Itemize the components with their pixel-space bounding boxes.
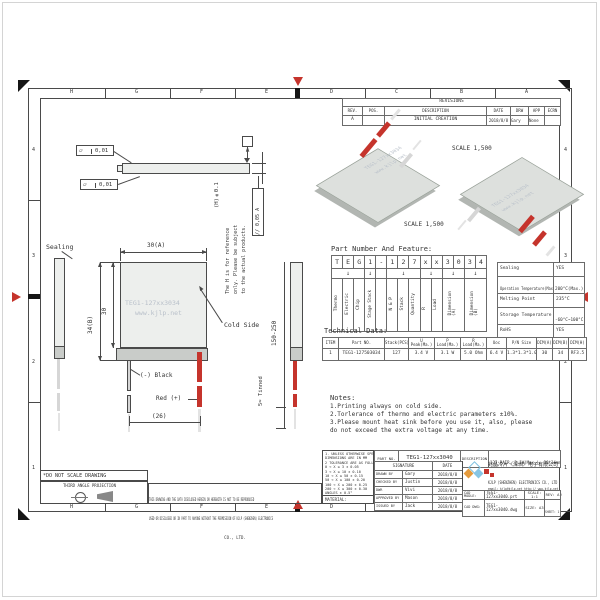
- zone-number: 1: [32, 466, 35, 471]
- right-view-red-wire: [293, 394, 297, 407]
- pn-char: 1: [365, 256, 376, 269]
- face-watermark-2: www.kjlp.net: [135, 310, 182, 317]
- feature-row: Sealing YES: [498, 263, 585, 277]
- zone-tick: [495, 88, 496, 98]
- feature-value: YES: [554, 263, 585, 277]
- pn-char: 0: [453, 256, 464, 269]
- pn-empty: [376, 279, 387, 332]
- pn-label: Electric: [346, 293, 351, 315]
- tech-header-row: ITEM Part NO. Stack(PCS) U Peak(Ma.) P L…: [323, 338, 587, 349]
- zone-tick: [235, 88, 236, 98]
- leader-line: [188, 399, 197, 400]
- parallelism-value: // 0,05 A: [256, 191, 261, 235]
- projection-cone-icon: [97, 491, 113, 502]
- pn-char: 1: [387, 256, 398, 269]
- note-line: 3.Please mount heat sink before you use …: [330, 420, 532, 426]
- rev-value: REV: A: [545, 491, 561, 500]
- tech-value: 1.3*1.3*1.0: [507, 349, 537, 361]
- flatness-icon: ▱: [79, 148, 83, 154]
- sig-role: DRAWN BY: [375, 471, 403, 479]
- pn-char: x: [431, 256, 442, 269]
- down-arrow-icon: ↓: [387, 269, 420, 279]
- sig-name: Mason: [403, 495, 433, 503]
- signature-header: SIGNATURE: [375, 462, 433, 471]
- flatness-value-1: 0,01: [91, 149, 108, 155]
- date-value: 2018/8/8: [487, 116, 511, 126]
- third-angle-label: THIRD ANGLE PROJECTION: [63, 484, 116, 488]
- signature-table: SIGNATURE DATE DRAWN BY Gary 2018/8/8 CH…: [374, 461, 463, 511]
- feature-row: Storage Temperature -60°C~100°C: [498, 308, 585, 325]
- red-wire-label: Red (+): [156, 396, 181, 402]
- pn-label: Load: [434, 299, 439, 310]
- tech-header: DIM(A): [537, 338, 553, 349]
- ext-line: [101, 360, 116, 361]
- dim-line-h: [262, 152, 263, 184]
- scale-value: SCALE: 1:1: [525, 491, 545, 500]
- note-line: 1.Printing always on cold side.: [330, 404, 442, 410]
- tech-value-row: 1 TEG1-127503034 127 3.4 V 3.1 W 5.0 Ohm…: [323, 349, 587, 361]
- tech-value: 1: [323, 349, 339, 361]
- feature-label: Storage Temperature: [498, 308, 554, 325]
- sig-name: Vivi: [403, 487, 433, 495]
- drw-value: Gary: [511, 116, 529, 126]
- material-label: MATERIAL:: [325, 498, 347, 502]
- pn-label: R: [423, 307, 428, 310]
- iso-view-left: TEG1-127xx3034 www.kjlp.net: [318, 140, 448, 230]
- app-value: None: [529, 116, 545, 126]
- cad-dwg-label: CAD DWG:: [463, 500, 485, 517]
- ext-line: [200, 416, 201, 426]
- down-arrow-icon: ↓: [442, 269, 464, 279]
- black-wire: [127, 360, 131, 391]
- signature-row: ISSUED BY Jack 2018/8/8: [375, 503, 463, 511]
- projection-circle-icon: [75, 492, 86, 503]
- down-arrow-icon: ↓: [365, 269, 376, 279]
- ext-line: [129, 416, 130, 426]
- part-number-title: Part Number And Feature:: [331, 246, 432, 253]
- sig-role: ISSUED BY: [375, 503, 403, 511]
- red-wire: [197, 352, 202, 382]
- tech-header: R Load(Ma.): [461, 338, 487, 349]
- dim-line-wire-length: [284, 262, 285, 429]
- sig-date: 2018/8/8: [433, 503, 463, 511]
- tech-value: 127: [385, 349, 409, 361]
- revisions-table: REVISIONS REV. POS. DESCRIPTION DATE DRW…: [342, 98, 561, 126]
- divider: [322, 495, 374, 496]
- features-table: Sealing YES Operation Temperature(Max.) …: [497, 262, 585, 339]
- right-view-wire-tip: [294, 409, 296, 429]
- note-line: do not exceed the extra voltage at any t…: [330, 428, 489, 434]
- zone-letter: B: [460, 90, 463, 95]
- pn-label: Thermo: [335, 295, 340, 311]
- face-watermark-1: TEG1-127xx3034: [125, 300, 180, 307]
- iso-view-right: TEG1-127xx3034 www.kjlp.net: [464, 150, 594, 240]
- side-view-right: [290, 262, 303, 348]
- zone-letter: H: [70, 90, 73, 95]
- cad-info-table: CAD MODLE: TEG1-127xx3040.prt SCALE: 1:1…: [462, 490, 561, 517]
- datum-flag: A: [242, 136, 253, 147]
- dim-height-text: 34(B): [88, 290, 94, 334]
- right-view-red-wire: [293, 361, 297, 390]
- dim-arrow: [111, 343, 115, 348]
- ext-line: [252, 173, 266, 174]
- drawing-sheet: H G F E D C B A H G F E D C B A 4 3 2 1 …: [0, 0, 600, 600]
- reference-note-line-1: The H is for reference: [226, 162, 231, 294]
- pn-char: 3: [442, 256, 453, 269]
- disclosure-line: USED OR DISCLOSED OR IN PART TO ANYONE W…: [149, 516, 273, 521]
- dim-width-text: 30(A): [147, 243, 165, 249]
- dim-arrow: [202, 250, 207, 254]
- app-col: APP: [529, 107, 545, 116]
- side-view-left: [54, 258, 65, 347]
- tech-value: 5.0 Ohm: [461, 349, 487, 361]
- center-mark-top: [295, 88, 300, 98]
- pn-char: G: [354, 256, 365, 269]
- zone-letter: D: [330, 505, 333, 510]
- tech-header: Uoc: [487, 338, 507, 349]
- zone-letter: D: [330, 90, 333, 95]
- tech-value: 30: [537, 349, 553, 361]
- pn-label: N & P: [390, 297, 395, 311]
- zone-tick: [105, 504, 106, 512]
- feature-row: Melting Point 235°C: [498, 294, 585, 308]
- flatness-value-2: 0,01: [95, 183, 112, 189]
- leader-line: [258, 176, 259, 188]
- down-arrow-icon: ↓: [332, 269, 365, 279]
- sig-date: 2018/8/8: [433, 471, 463, 479]
- revision-row: A INITIAL CREATION 2018/8/8 Gary None: [343, 116, 561, 126]
- sig-name: Justin: [403, 479, 433, 487]
- zone-letter: G: [135, 90, 138, 95]
- zone-letter: H: [70, 505, 73, 510]
- left-view-wire: [57, 393, 60, 411]
- pn-arrow-row: ↓ ↓ ↓ ↓ ↓ ↓: [332, 269, 487, 279]
- pn-label: (B): [475, 308, 480, 316]
- date-col: DATE: [487, 107, 511, 116]
- zone-letter: A: [525, 90, 528, 95]
- tech-value: TEG1-127503034: [339, 349, 385, 361]
- sig-role: APPROVED BY: [375, 495, 403, 503]
- note-line: 2.Torlerance of thermo and electric para…: [330, 412, 518, 418]
- wire-length-text: 150-250: [272, 300, 278, 346]
- scale-label-1: SCALE 1,500: [452, 146, 492, 152]
- flatness-frame-1: ▱ 0,01: [76, 145, 114, 156]
- zone-tick: [28, 200, 40, 201]
- dim-arrow: [98, 262, 102, 267]
- tech-header: DIM(B): [553, 338, 569, 349]
- size-value: SIZE: A3: [525, 500, 545, 517]
- part-number-table: T E G 1 - 1 2 7 x x 3 0 3 4 ↓ ↓ ↓ ↓ ↓ ↓ …: [331, 255, 487, 332]
- rev-value: A: [343, 116, 363, 126]
- scale-label-2: SCALE 1,500: [404, 222, 444, 228]
- zone-number: 3: [32, 254, 35, 259]
- do-not-scale-cell: *DO NOT SCALE DRAWING: [40, 470, 148, 481]
- dim-h-text: (H)±0.1: [215, 150, 221, 208]
- dim-arrow: [120, 250, 125, 254]
- feature-value: 200°C(Max.): [555, 288, 583, 293]
- sig-date: 2018/8/8: [433, 487, 463, 495]
- iso-left-face: TEG1-127xx3034 www.kjlp.net: [316, 148, 440, 223]
- notes-title: Notes:: [330, 395, 355, 402]
- register-arrow-left: [12, 292, 21, 302]
- tinned-label: 5≈ Tinned: [259, 352, 265, 406]
- company-name-cn: 兆晶冷片（深圳）电子有限公司: [488, 463, 558, 468]
- disclosure-block: THIS DRAWING AND THE DATA DISCLOSED HERE…: [148, 483, 322, 504]
- feature-label: Melting Point: [498, 294, 554, 308]
- technical-data-title: Technical Data:: [324, 328, 387, 335]
- zone-tick: [105, 88, 106, 98]
- down-arrow-icon: ↓: [420, 269, 442, 279]
- signature-row: DWR Vivi 2018/8/8: [375, 487, 463, 495]
- dim-line-wires: [129, 422, 201, 423]
- ecrn-value: [545, 116, 561, 126]
- sig-date: 2018/8/8: [433, 479, 463, 487]
- zone-tick: [28, 402, 40, 403]
- sig-role: CHECKED BY: [375, 479, 403, 487]
- zone-tick: [430, 88, 431, 98]
- pn-char: 7: [409, 256, 420, 269]
- down-arrow-icon: ↓: [464, 269, 486, 279]
- pn-char: T: [332, 256, 343, 269]
- flatness-frame-2: ▱ 0,01: [80, 179, 118, 190]
- dim-wires-text: (26): [152, 414, 166, 420]
- pn-label-row: Thermo Electric Chip Stage Stack N & P S…: [332, 279, 487, 332]
- signature-row: CHECKED BY Justin 2018/8/8: [375, 479, 463, 487]
- zone-tick: [170, 88, 171, 98]
- tech-value: 34: [553, 349, 569, 361]
- zone-letter: G: [135, 505, 138, 510]
- tech-header: P/N Size: [507, 338, 537, 349]
- description-value: INITIAL CREATION: [385, 116, 487, 126]
- pn-label: (A): [453, 308, 458, 316]
- sheet-value: SHEET: 1 OF 1: [545, 511, 561, 515]
- feature-row: Operation Temperature(Max.) 200°C(Max.): [498, 277, 585, 294]
- black-wire: [127, 395, 131, 413]
- pn-char: 3: [464, 256, 475, 269]
- zone-number: 2: [32, 360, 35, 365]
- tech-value: 3.1 W: [435, 349, 461, 361]
- ext-line: [252, 163, 266, 164]
- pn-label: Stack: [401, 297, 406, 311]
- tech-value: 3.4 V: [409, 349, 435, 361]
- pn-code-row: T E G 1 - 1 2 7 x x 3 0 3 4: [332, 256, 487, 269]
- side-view-left-edge: [54, 346, 65, 359]
- pn-char: -: [376, 256, 387, 269]
- feature-label: Operation Temperature(Max.): [500, 288, 554, 293]
- dim-arrow: [111, 262, 115, 267]
- zone-letter: E: [265, 90, 268, 95]
- pn-char: E: [343, 256, 354, 269]
- tech-header: U Peak(Ma.): [409, 338, 435, 349]
- dim-inner-text: 30: [102, 295, 108, 315]
- tech-value: 6.4 V: [487, 349, 507, 361]
- red-wire: [197, 386, 202, 407]
- zone-letter: F: [200, 90, 203, 95]
- reference-note-line-2: only. Please be subject: [234, 162, 239, 294]
- pn-char: x: [420, 256, 431, 269]
- tech-header: P Load(Ma.): [435, 338, 461, 349]
- ecrn-col: ECRN: [545, 107, 561, 116]
- tech-value: RF3.5: [569, 349, 587, 361]
- iso-right-face: TEG1-127xx3034 www.kjlp.net: [460, 157, 584, 232]
- feature-value: 235°C: [554, 294, 585, 308]
- left-view-wire: [57, 359, 60, 389]
- dim-line-inner: [113, 262, 114, 348]
- zone-number: 3: [564, 254, 567, 259]
- tech-header: Part NO.: [339, 338, 385, 349]
- pn-label: Quantity: [412, 293, 417, 315]
- cold-side-label: Cold Side: [224, 322, 259, 329]
- side-view-right-edge: [290, 347, 303, 361]
- technical-data-table: ITEM Part NO. Stack(PCS) U Peak(Ma.) P L…: [322, 337, 587, 361]
- pn-char: 4: [475, 256, 486, 269]
- pos-col: POS.: [363, 107, 385, 116]
- dim-line-width: [120, 252, 207, 253]
- pn-char: 2: [398, 256, 409, 269]
- revisions-header-row: REV. POS. DESCRIPTION DATE DRW APP ECRN: [343, 107, 561, 116]
- disclosure-line: CO., LTD.: [224, 535, 246, 540]
- signature-row: APPROVED BY Mason 2018/8/8: [375, 495, 463, 503]
- sig-role: DWR: [375, 487, 403, 495]
- revisions-title-row: REVISIONS: [343, 99, 561, 107]
- parallelism-frame: // 0,05 A: [252, 188, 264, 236]
- pn-label: Chip: [357, 299, 362, 310]
- register-arrow-top: [293, 77, 303, 86]
- pos-value: [363, 116, 385, 126]
- date-header: DATE: [433, 462, 463, 471]
- cad-dwg-value: TEG1-127xx3040.dwg: [485, 500, 525, 517]
- left-view-wire-tip: [58, 413, 60, 431]
- tech-header: Stack(PCS): [385, 338, 409, 349]
- signature-row: DRAWN BY Gary 2018/8/8: [375, 471, 463, 479]
- tech-header: DIM(H): [569, 338, 587, 349]
- reference-note-line-3: to the actual products.: [242, 162, 247, 294]
- sig-date: 2018/8/8: [433, 495, 463, 503]
- cad-model-value: TEG1-127xx3040.prt: [485, 491, 525, 500]
- disclosure-line: THIS DRAWING AND THE DATA DISCLOSED HERE…: [149, 497, 254, 502]
- projection-axis: [71, 497, 88, 498]
- third-angle-cell: THIRD ANGLE PROJECTION: [40, 481, 148, 504]
- dim-arrow: [98, 356, 102, 361]
- do-not-scale-label: *DO NOT SCALE DRAWING: [43, 474, 106, 479]
- zone-tick: [560, 402, 572, 403]
- black-wire-label: (-) Black: [140, 373, 173, 379]
- zone-tick: [365, 504, 366, 512]
- sealing-label: Sealing: [46, 244, 73, 251]
- flatness-icon: ▱: [83, 182, 87, 188]
- revisions-title: REVISIONS: [343, 99, 561, 107]
- feature-value: -60°C~100°C: [555, 319, 583, 324]
- zone-letter: C: [395, 90, 398, 95]
- drw-col: DRW: [511, 107, 529, 116]
- feature-label: Sealing: [498, 263, 554, 277]
- sig-name: Gary: [403, 471, 433, 479]
- zone-tick: [365, 88, 366, 98]
- ext-line: [276, 407, 286, 408]
- ext-line: [276, 428, 286, 429]
- cad-model-label: CAD MODLE:: [463, 491, 485, 500]
- pn-empty: [376, 269, 387, 279]
- rev-col: REV.: [343, 107, 363, 116]
- pn-label: Stage Stack: [368, 290, 372, 318]
- zone-number: 4: [32, 148, 35, 153]
- sig-name: Jack: [403, 503, 433, 511]
- tech-header: ITEM: [323, 338, 339, 349]
- center-mark-left: [28, 294, 40, 299]
